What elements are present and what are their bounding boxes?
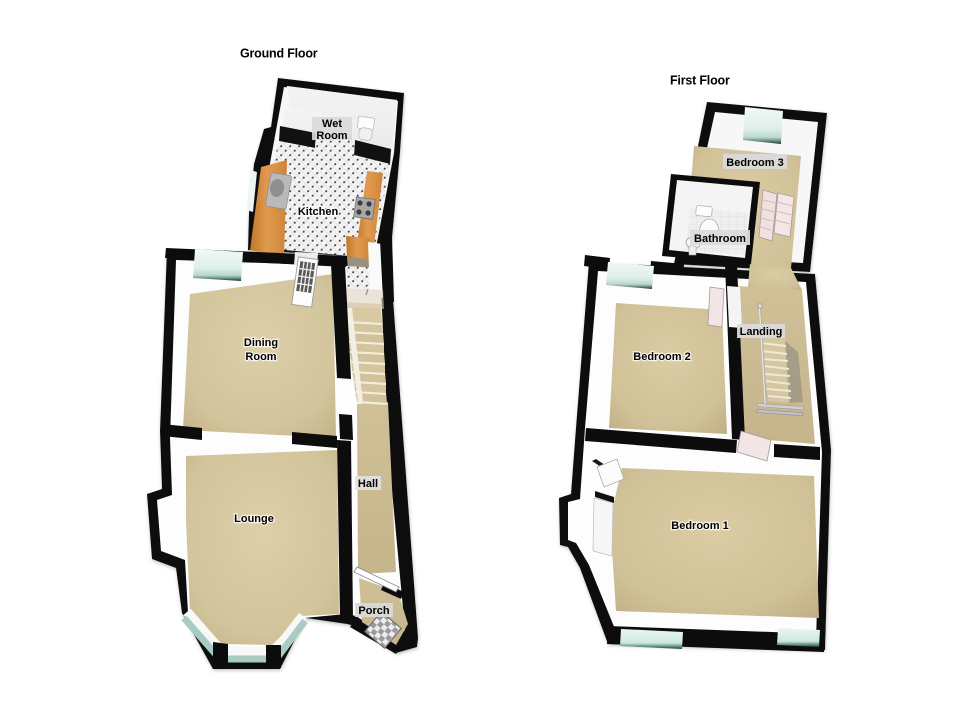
svg-text:Kitchen: Kitchen bbox=[298, 206, 339, 218]
svg-text:Bathroom: Bathroom bbox=[694, 233, 746, 245]
svg-text:Bedroom 3: Bedroom 3 bbox=[726, 157, 783, 169]
svg-text:Room: Room bbox=[245, 351, 276, 363]
svg-text:Hall: Hall bbox=[358, 478, 378, 490]
svg-text:Porch: Porch bbox=[358, 605, 389, 617]
svg-text:Wet: Wet bbox=[322, 118, 342, 130]
svg-text:First Floor: First Floor bbox=[670, 74, 730, 88]
svg-text:Room: Room bbox=[316, 130, 347, 142]
svg-text:Bedroom 2: Bedroom 2 bbox=[633, 351, 690, 363]
svg-text:Ground Floor: Ground Floor bbox=[240, 47, 318, 61]
svg-text:Landing: Landing bbox=[740, 326, 783, 338]
svg-text:Lounge: Lounge bbox=[234, 513, 274, 525]
svg-text:Bedroom 1: Bedroom 1 bbox=[671, 520, 728, 532]
svg-text:Dining: Dining bbox=[244, 337, 278, 349]
